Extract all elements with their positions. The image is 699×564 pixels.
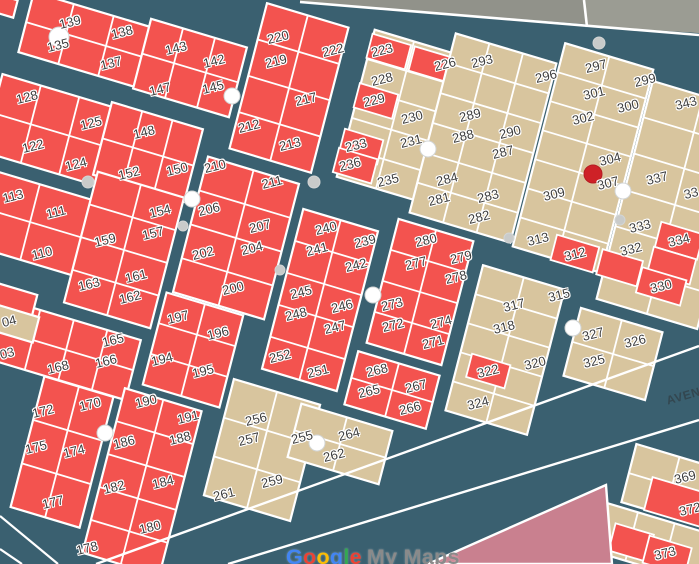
white-map-marker[interactable] (365, 287, 381, 303)
google-logo: Google (286, 545, 362, 564)
gray-map-marker[interactable] (308, 176, 320, 188)
my-maps-label: My Maps (367, 545, 460, 564)
map-viewport[interactable]: 1391351381371431421471451281251221241481… (0, 0, 699, 564)
parcel-label-04: 04 (0, 313, 17, 329)
parcel-label-33: 33 (682, 185, 699, 201)
gray-map-marker[interactable] (504, 233, 514, 243)
google-logo-letter: o (303, 545, 316, 564)
gray-map-marker[interactable] (275, 265, 285, 275)
parcel-label-03: 03 (0, 345, 16, 361)
gray-map-marker[interactable] (593, 37, 605, 49)
google-logo-letter: e (350, 545, 362, 564)
white-map-marker[interactable] (224, 88, 240, 104)
google-logo-letter: g (330, 545, 343, 564)
white-map-marker[interactable] (97, 425, 113, 441)
google-my-maps-watermark: GoogleMy Maps (286, 545, 460, 564)
white-map-marker[interactable] (565, 320, 581, 336)
gray-map-marker[interactable] (178, 221, 188, 231)
gray-map-marker[interactable] (82, 176, 94, 188)
google-logo-letter: G (286, 545, 303, 564)
parcel-label-372: 372 (678, 500, 699, 518)
gray-map-marker[interactable] (615, 215, 625, 225)
google-logo-letter: o (316, 545, 329, 564)
